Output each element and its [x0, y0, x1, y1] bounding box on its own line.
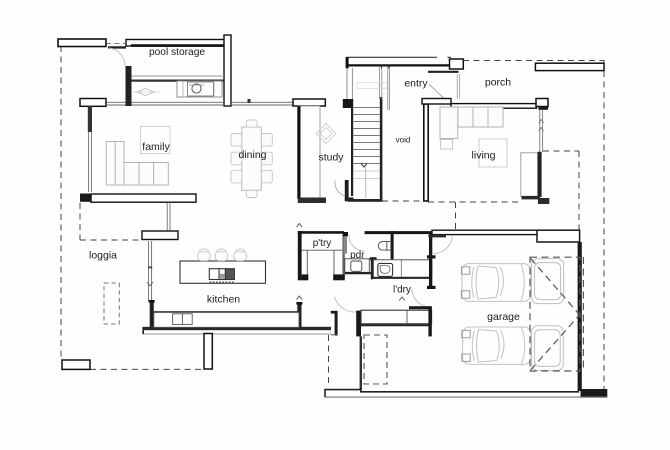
svg-text:porch: porch [485, 77, 511, 89]
svg-text:dining: dining [238, 149, 266, 161]
svg-text:loggia: loggia [89, 250, 117, 262]
svg-text:living: living [472, 150, 496, 162]
svg-text:kitchen: kitchen [207, 294, 240, 306]
svg-text:pool storage: pool storage [149, 47, 205, 58]
svg-text:family: family [142, 141, 170, 153]
svg-text:l'dry: l'dry [393, 285, 411, 296]
svg-text:p'try: p'try [313, 238, 332, 249]
svg-text:void: void [396, 136, 411, 145]
svg-text:entry: entry [404, 78, 428, 90]
svg-text:study: study [318, 152, 344, 164]
svg-text:garage: garage [487, 311, 520, 323]
